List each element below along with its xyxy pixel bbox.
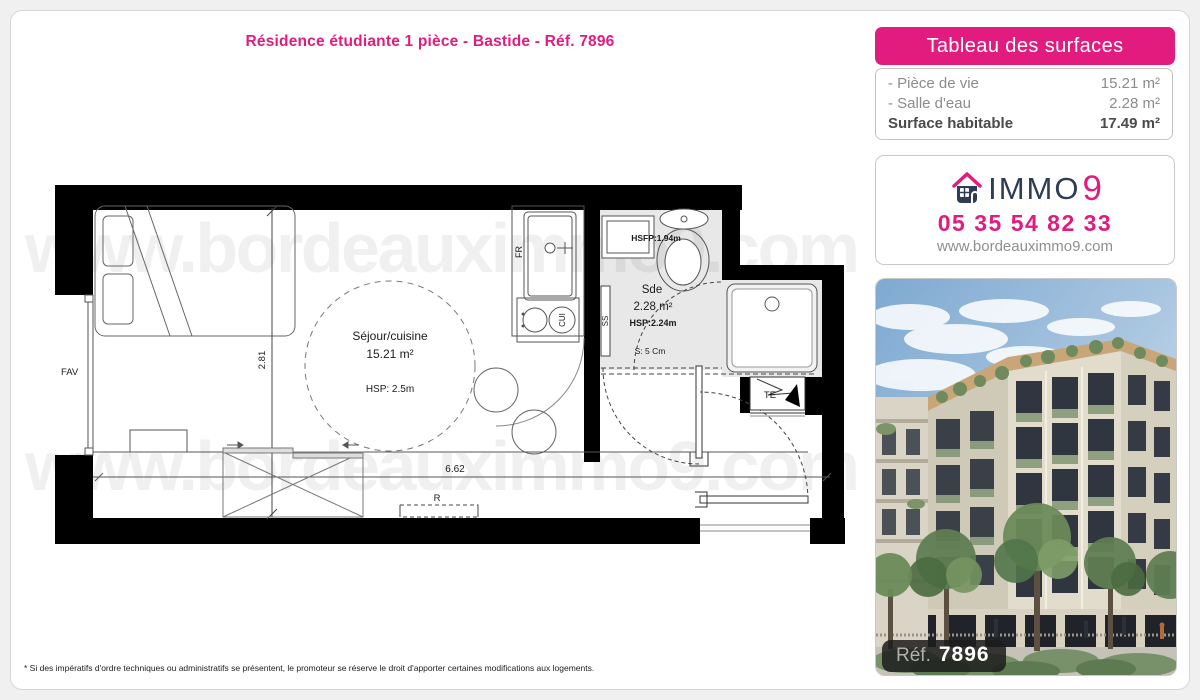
watermark-line2: www.bordeauximmo9.com	[24, 427, 860, 505]
duct-label: SS	[601, 316, 610, 327]
brand-immo: IMMO	[988, 171, 1080, 207]
table-row: - Salle d'eau 2.28 m²	[888, 94, 1160, 114]
surfaces-table: - Pièce de vie 15.21 m² - Salle d'eau 2.…	[875, 68, 1173, 140]
agency-website: www.bordeauximmo9.com	[937, 238, 1113, 255]
bathroom-hsp: HSP:2.24m	[629, 318, 676, 328]
brand-nine: 9	[1082, 171, 1101, 207]
living-room-area: 15.21 m²	[366, 347, 413, 361]
dimension-width-label: 6.62	[445, 464, 465, 475]
surface-label: - Salle d'eau	[888, 94, 971, 114]
house-icon	[948, 169, 986, 207]
bathroom-hsfp: HSFP:1.94m	[631, 233, 681, 243]
living-room-circle	[305, 281, 475, 451]
bathroom-shower-note: S: 5 Cm	[635, 346, 666, 356]
agency-phone: 05 35 54 82 33	[938, 210, 1112, 237]
shower-tray	[727, 284, 817, 372]
agency-card: IMMO 9 05 35 54 82 33 www.bordeauximmo9.…	[875, 155, 1175, 265]
table-row-total: Surface habitable 17.49 m²	[888, 114, 1160, 134]
surfaces-header: Tableau des surfaces	[875, 27, 1175, 65]
surface-value: 15.21 m²	[1101, 74, 1160, 94]
surfaces-header-label: Tableau des surfaces	[926, 35, 1123, 58]
building-illustration	[876, 279, 1176, 675]
left-wing	[876, 397, 928, 675]
surface-total-label: Surface habitable	[888, 114, 1013, 134]
cooktop-label: CUI	[558, 313, 567, 327]
surface-total-value: 17.49 m²	[1100, 114, 1160, 134]
building-photo: Réf. 7896	[875, 278, 1177, 676]
surface-value: 2.28 m²	[1109, 94, 1160, 114]
electrical-panel	[750, 377, 805, 416]
agency-logo: IMMO 9	[948, 165, 1102, 207]
dimension-height-label: 2.81	[257, 351, 268, 370]
living-room-name: Séjour/cuisine	[352, 329, 428, 343]
ref-number: 7896	[939, 643, 990, 667]
radiator	[400, 505, 478, 517]
living-room-hsp: HSP: 2.5m	[366, 384, 414, 395]
page: { "page": { "title": "Résidence étudiant…	[0, 0, 1200, 700]
main-building	[928, 337, 1176, 675]
electrical-label: TE	[764, 390, 776, 401]
table-row: - Pièce de vie 15.21 m²	[888, 74, 1160, 94]
bathroom-name: Sde	[642, 284, 662, 296]
bathroom-area: 2.28 m²	[634, 301, 673, 313]
surface-label: - Pièce de vie	[888, 74, 979, 94]
window-fav-label: FAV	[61, 367, 79, 378]
disclaimer-text: * Si des impératifs d'ordre techniques o…	[24, 663, 594, 673]
ref-label: Réf.	[896, 645, 931, 667]
page-title: Résidence étudiante 1 pièce - Bastide - …	[50, 33, 810, 51]
ref-badge: Réf. 7896	[882, 640, 1006, 672]
radiator-label: R	[434, 493, 441, 504]
floor-plan: www.bordeauximmo9.com www.bordeauximmo9.…	[45, 178, 860, 548]
fridge-label: FR	[514, 246, 524, 258]
